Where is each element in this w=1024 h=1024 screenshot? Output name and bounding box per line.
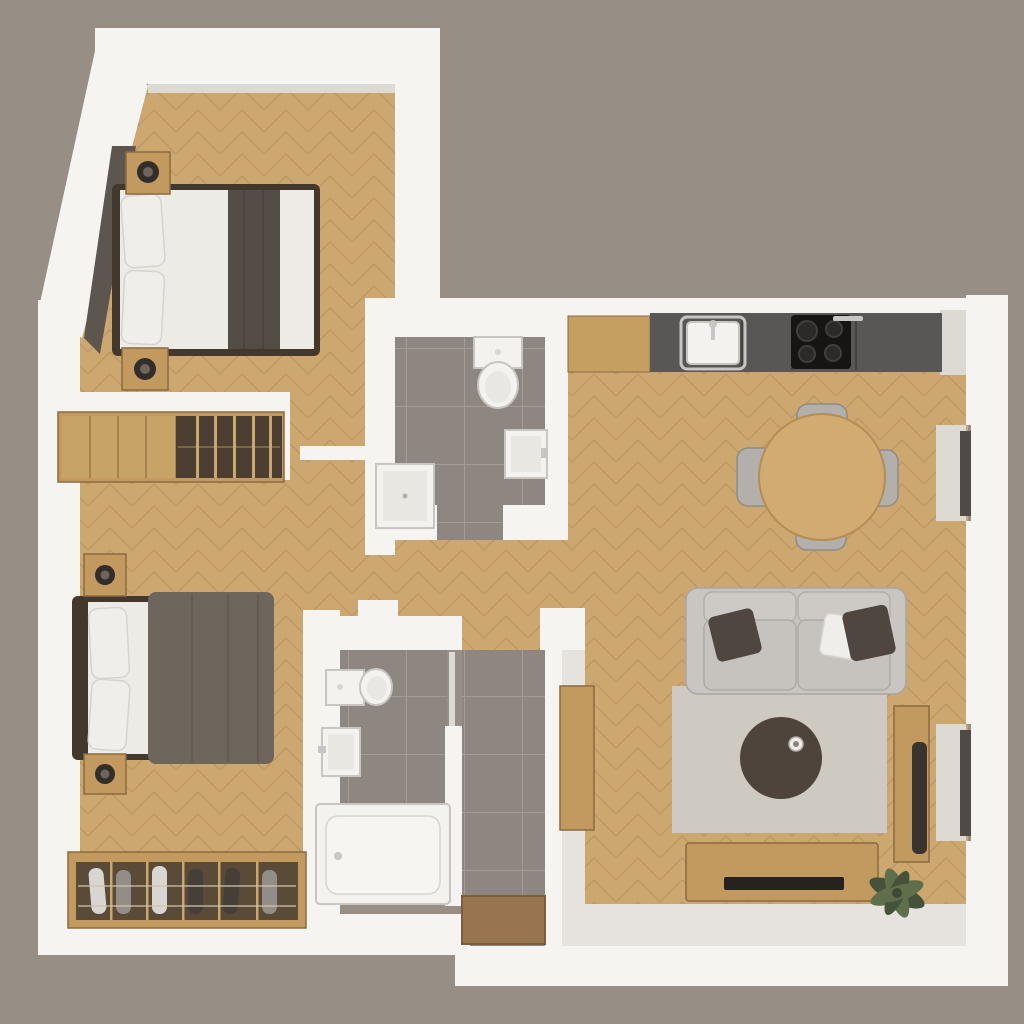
sideboard <box>560 686 594 830</box>
wall-wardrobe-niche-top <box>55 392 290 412</box>
wc-basin-inner <box>511 436 541 472</box>
nightstand-2a-lamp-shade <box>101 571 110 580</box>
shoe <box>222 868 240 915</box>
wall-hall-living-stub <box>540 608 585 650</box>
wall-living-left <box>545 337 568 540</box>
window-2-glass <box>960 730 971 836</box>
bath-basin-inner <box>328 734 354 770</box>
bed-2-pillow-bottom <box>88 679 131 751</box>
floor-plan-render <box>0 0 1024 1024</box>
shoe <box>152 866 167 914</box>
window-1-glass <box>960 431 971 516</box>
shoe <box>262 870 277 914</box>
bench-divider <box>110 862 113 920</box>
wall-top-inner-face <box>148 84 397 93</box>
shoe <box>116 870 131 914</box>
entry <box>462 896 545 944</box>
bathtub-inner <box>326 816 440 894</box>
wardrobe-divider <box>252 416 255 478</box>
bed-2-pillow-top <box>88 607 130 679</box>
tv-soundbar <box>724 877 844 890</box>
wall-right-middle <box>966 521 1008 724</box>
wardrobe-divider <box>214 416 217 478</box>
bench-divider <box>182 862 185 920</box>
shower-drain <box>403 494 408 499</box>
bed-2-duvet <box>148 592 274 764</box>
bathtub-faucet <box>334 852 342 860</box>
window-1-outer-sill <box>971 425 1008 521</box>
nightstand-2b-lamp-shade <box>101 770 110 779</box>
cooktop-handle <box>833 316 863 321</box>
living-floor-bottom-strip <box>585 904 968 948</box>
speaker <box>912 742 927 854</box>
wc-toilet-button <box>495 349 501 355</box>
burner <box>825 345 841 361</box>
shoe <box>188 869 203 914</box>
wall-bottom-right <box>455 946 1008 986</box>
coffee-cup-inner <box>793 741 799 747</box>
wall-kitchen-end-face <box>940 310 966 375</box>
bath-toilet-button <box>337 684 343 690</box>
burner <box>826 321 842 337</box>
wall-right-lower <box>966 841 1008 986</box>
window-2-outer-sill <box>971 724 1008 841</box>
dining-table <box>759 414 885 540</box>
wall-bathroom-top-bump <box>358 600 398 618</box>
coffee-table <box>740 717 822 799</box>
wc-toilet-seat <box>485 371 511 403</box>
kitchen-cabinet-wood <box>568 316 650 372</box>
wall-bedroom-1-bottom <box>300 446 372 460</box>
bed-1-pillow-top <box>121 194 166 269</box>
wardrobe-doors <box>62 416 176 478</box>
wardrobe-divider <box>233 416 236 478</box>
bench-divider <box>256 862 259 920</box>
bed-1-pillow-bottom <box>121 270 165 345</box>
bed-1-runner <box>228 190 280 349</box>
bedroom-2 <box>68 554 306 928</box>
bench-divider <box>146 862 149 920</box>
burner <box>799 346 815 362</box>
door-mat <box>462 896 545 944</box>
burner <box>797 321 817 341</box>
bench-divider <box>218 862 221 920</box>
wall-bathroom-top <box>303 616 462 650</box>
wall-top-bedroom-1 <box>95 28 440 84</box>
nightstand-1a-lamp-shade <box>143 167 153 177</box>
wardrobe-divider <box>269 416 272 478</box>
bath-toilet-tank <box>326 670 364 705</box>
media-console <box>686 843 878 901</box>
bath-basin-faucet <box>318 746 326 753</box>
wardrobe-divider <box>196 416 199 478</box>
wall-bedroom-1-right <box>395 28 440 310</box>
plant-center <box>892 888 902 898</box>
wall-right-upper <box>966 295 1008 425</box>
bathroom-door-leaf <box>449 652 455 726</box>
nightstand-1b-lamp-shade <box>140 364 150 374</box>
wc-basin-faucet <box>541 448 547 458</box>
bath-toilet-seat <box>367 676 387 700</box>
wardrobe <box>58 412 284 482</box>
kitchen-faucet-stem <box>711 326 715 340</box>
floor-plan <box>0 0 1024 1024</box>
